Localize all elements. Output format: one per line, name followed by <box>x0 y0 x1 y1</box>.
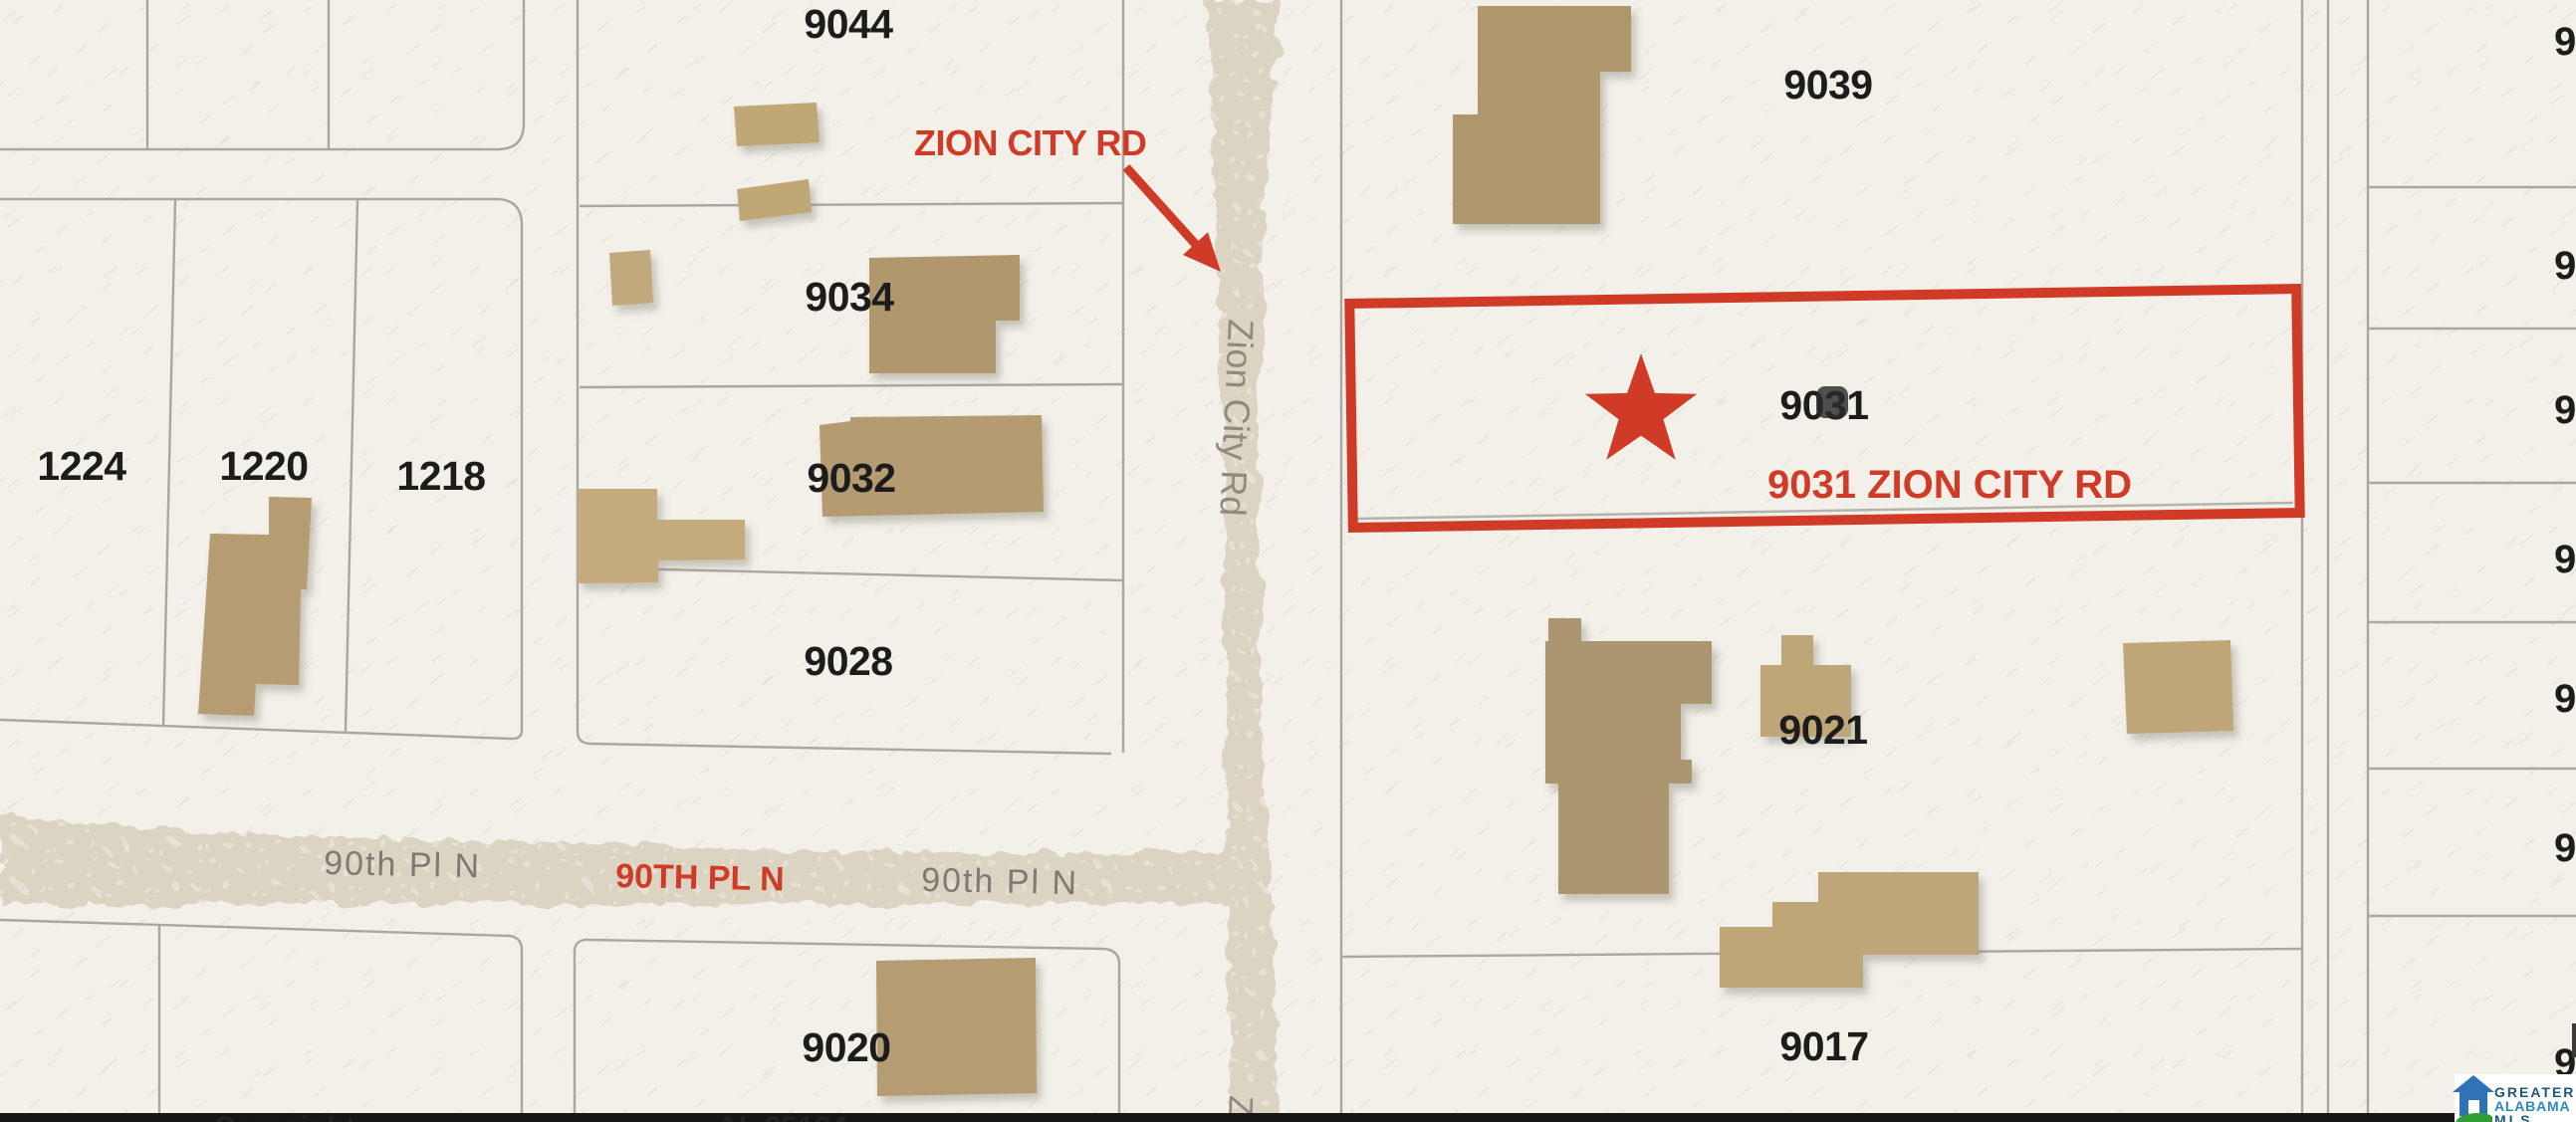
svg-text:90th Pl N: 90th Pl N <box>324 844 482 885</box>
svg-text:9044: 9044 <box>804 1 893 47</box>
svg-text:90: 90 <box>2554 244 2576 288</box>
svg-text:9039: 9039 <box>1783 62 1872 108</box>
svg-text:AL 35124: AL 35124 <box>717 1111 848 1122</box>
svg-text:9031 ZION CITY RD: 9031 ZION CITY RD <box>1767 463 2132 507</box>
svg-text:ZION CITY RD: ZION CITY RD <box>914 122 1146 163</box>
svg-text:1224: 1224 <box>37 443 126 489</box>
svg-text:90: 90 <box>2554 388 2576 432</box>
svg-text:9017: 9017 <box>1779 1023 1868 1069</box>
svg-text:90: 90 <box>2554 826 2576 870</box>
svg-text:MLS: MLS <box>2494 1112 2533 1122</box>
svg-text:90: 90 <box>2554 538 2576 581</box>
svg-text:9032: 9032 <box>807 455 895 501</box>
svg-text:1218: 1218 <box>396 453 485 499</box>
svg-text:1220: 1220 <box>219 443 308 489</box>
svg-text:Zion City Rd: Zion City Rd <box>1212 319 1262 518</box>
svg-text:90TH PL N: 90TH PL N <box>615 857 785 899</box>
svg-text:90: 90 <box>2554 677 2576 721</box>
svg-text:90: 90 <box>2554 20 2576 64</box>
svg-text:9034: 9034 <box>805 274 894 320</box>
svg-text:9028: 9028 <box>804 638 892 684</box>
svg-text:9020: 9020 <box>802 1024 890 1070</box>
svg-text:9021: 9021 <box>1778 707 1867 753</box>
svg-text:Copyright: Copyright <box>214 1111 355 1122</box>
svg-text:90th Pl N: 90th Pl N <box>921 861 1079 902</box>
